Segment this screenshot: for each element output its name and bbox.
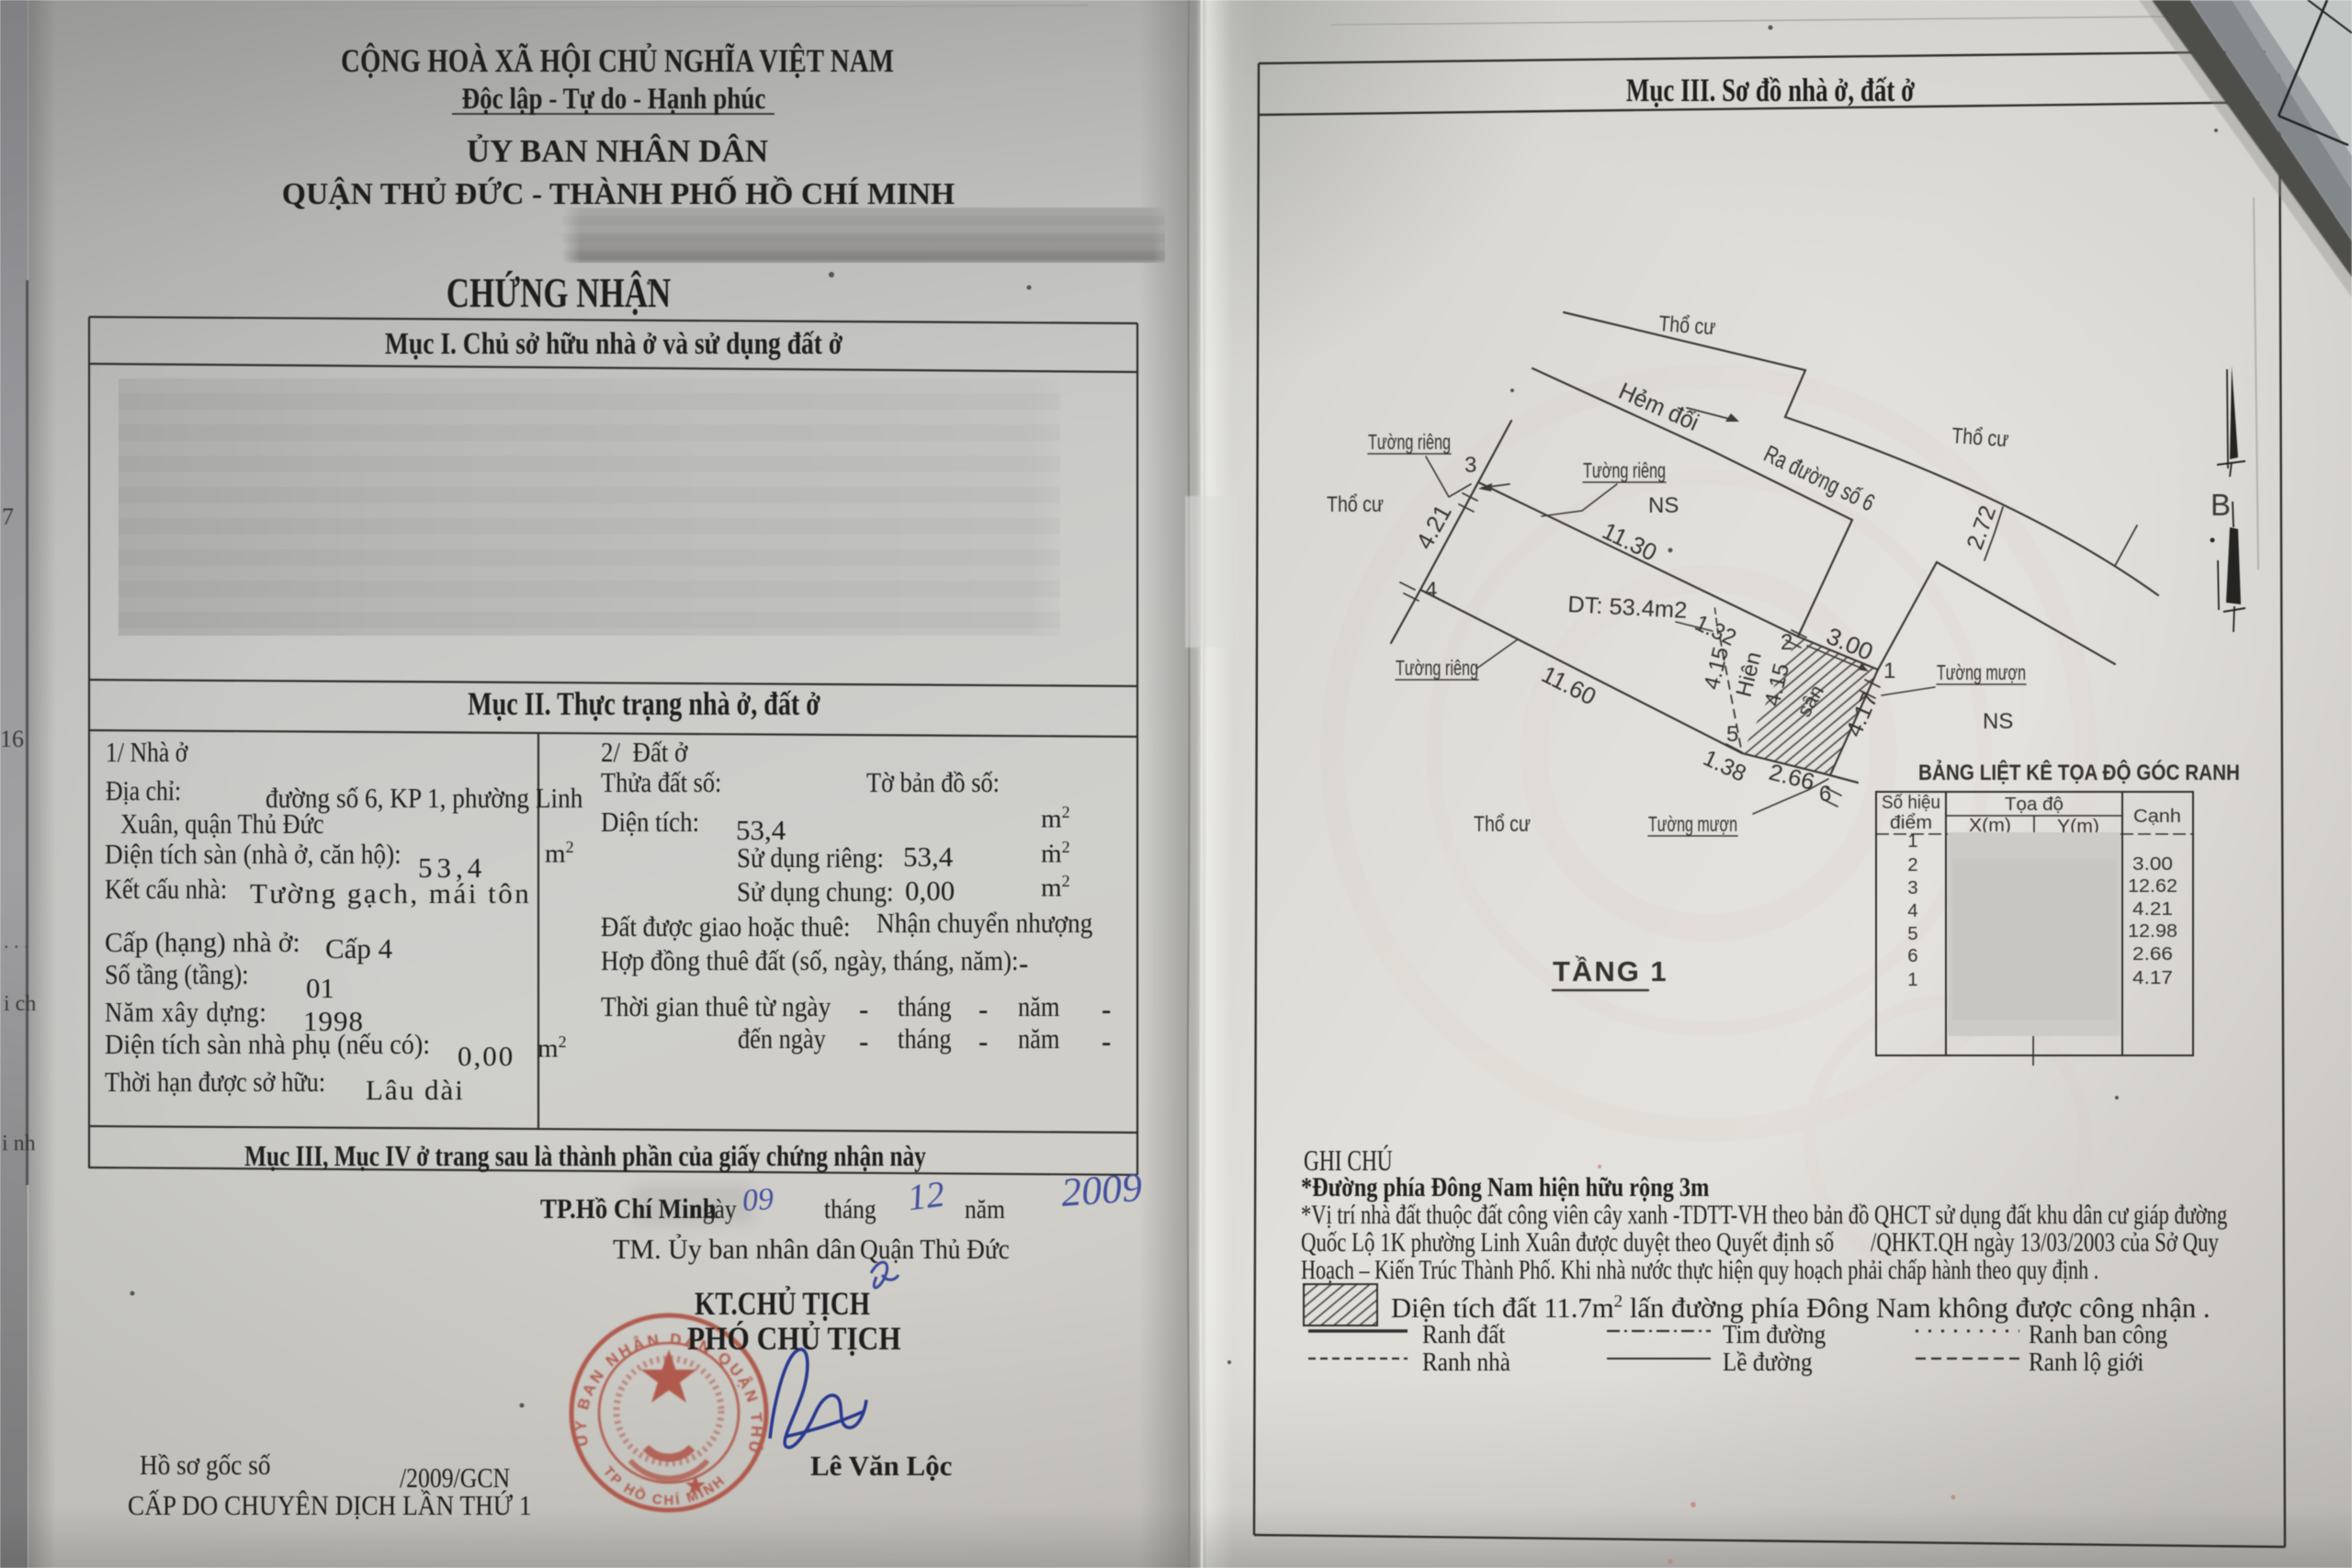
svg-text:4: 4 (1907, 900, 1917, 921)
svg-text:2: 2 (1907, 854, 1917, 875)
svg-text:12.98: 12.98 (2128, 920, 2177, 942)
svg-text:1: 1 (1883, 659, 1895, 683)
svg-text:NS: NS (1648, 493, 1679, 518)
svg-text:Thổ cư: Thổ cư (1951, 423, 2010, 452)
svg-text:6: 6 (1907, 945, 1917, 966)
svg-text:Thổ cư: Thổ cư (1327, 492, 1384, 517)
svg-text:5: 5 (1726, 722, 1738, 747)
svg-text:4: 4 (1425, 578, 1437, 603)
svg-text:1.38: 1.38 (1699, 745, 1749, 787)
svg-text:TẦNG 1: TẦNG 1 (1553, 955, 1668, 987)
svg-text:11.30: 11.30 (1598, 516, 1661, 566)
svg-text:4.21: 4.21 (2132, 898, 2173, 919)
svg-text:Hiên: Hiên (1732, 649, 1767, 699)
svg-text:3: 3 (1464, 453, 1476, 478)
svg-text:Tường riêng: Tường riêng (1396, 656, 1478, 680)
svg-text:Cạnh: Cạnh (2133, 806, 2181, 827)
svg-text:5: 5 (1907, 923, 1917, 944)
svg-text:2.66: 2.66 (2132, 943, 2173, 964)
svg-text:3.00: 3.00 (2132, 853, 2173, 874)
svg-text:4.17: 4.17 (2132, 967, 2173, 988)
svg-text:6: 6 (1819, 782, 1831, 807)
svg-text:BẢNG LIỆT KÊ TỌA ĐỘ GÓC RANH: BẢNG LIỆT KÊ TỌA ĐỘ GÓC RANH (1918, 759, 2240, 785)
svg-text:2.72: 2.72 (1962, 502, 2001, 553)
svg-text:Thổ cư: Thổ cư (1474, 812, 1531, 837)
svg-text:3: 3 (1907, 877, 1917, 898)
svg-text:1.32: 1.32 (1690, 610, 1740, 651)
svg-text:Số hiệu: Số hiệu (1882, 792, 1940, 813)
svg-text:1: 1 (1907, 969, 1917, 990)
svg-text:Tọa độ: Tọa độ (2005, 794, 2064, 815)
svg-text:NS: NS (1983, 709, 2013, 734)
svg-text:2: 2 (1781, 630, 1792, 655)
svg-text:Tường riêng: Tường riêng (1583, 458, 1666, 482)
svg-text:12.62: 12.62 (2128, 875, 2177, 897)
svg-text:Tường mượn: Tường mượn (1648, 812, 1737, 836)
svg-text:B: B (2211, 488, 2231, 522)
svg-text:Thổ cư: Thổ cư (1658, 311, 1717, 340)
svg-text:Tường riêng: Tường riêng (1368, 430, 1451, 454)
svg-text:Tường mượn: Tường mượn (1937, 660, 2026, 684)
svg-text:1: 1 (1907, 830, 1917, 852)
